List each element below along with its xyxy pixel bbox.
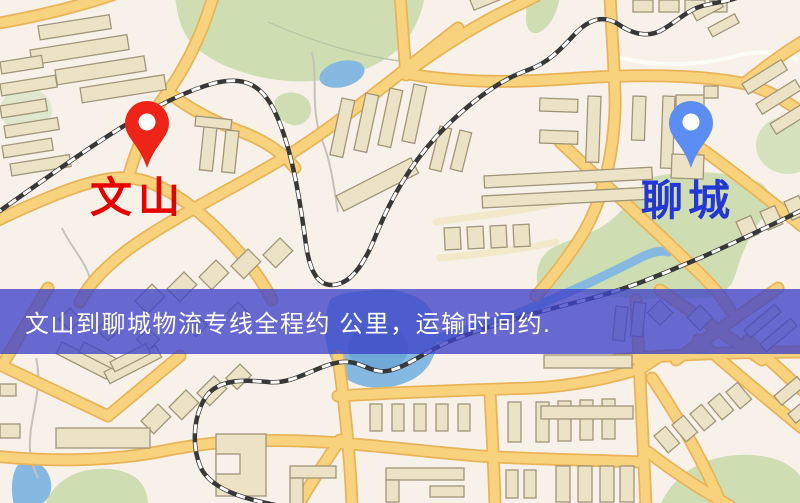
origin-label: 文山 [90,178,186,220]
banner-text: 文山到聊城物流专线全程约 公里，运输时间约. [25,304,551,339]
destination-label: 聊城 [641,181,735,223]
map-canvas [0,0,800,503]
map-screenshot: 文山 聊城 文山到聊城物流专线全程约 公里，运输时间约. [0,0,800,503]
route-info-banner: 文山到聊城物流专线全程约 公里，运输时间约. [0,289,800,354]
